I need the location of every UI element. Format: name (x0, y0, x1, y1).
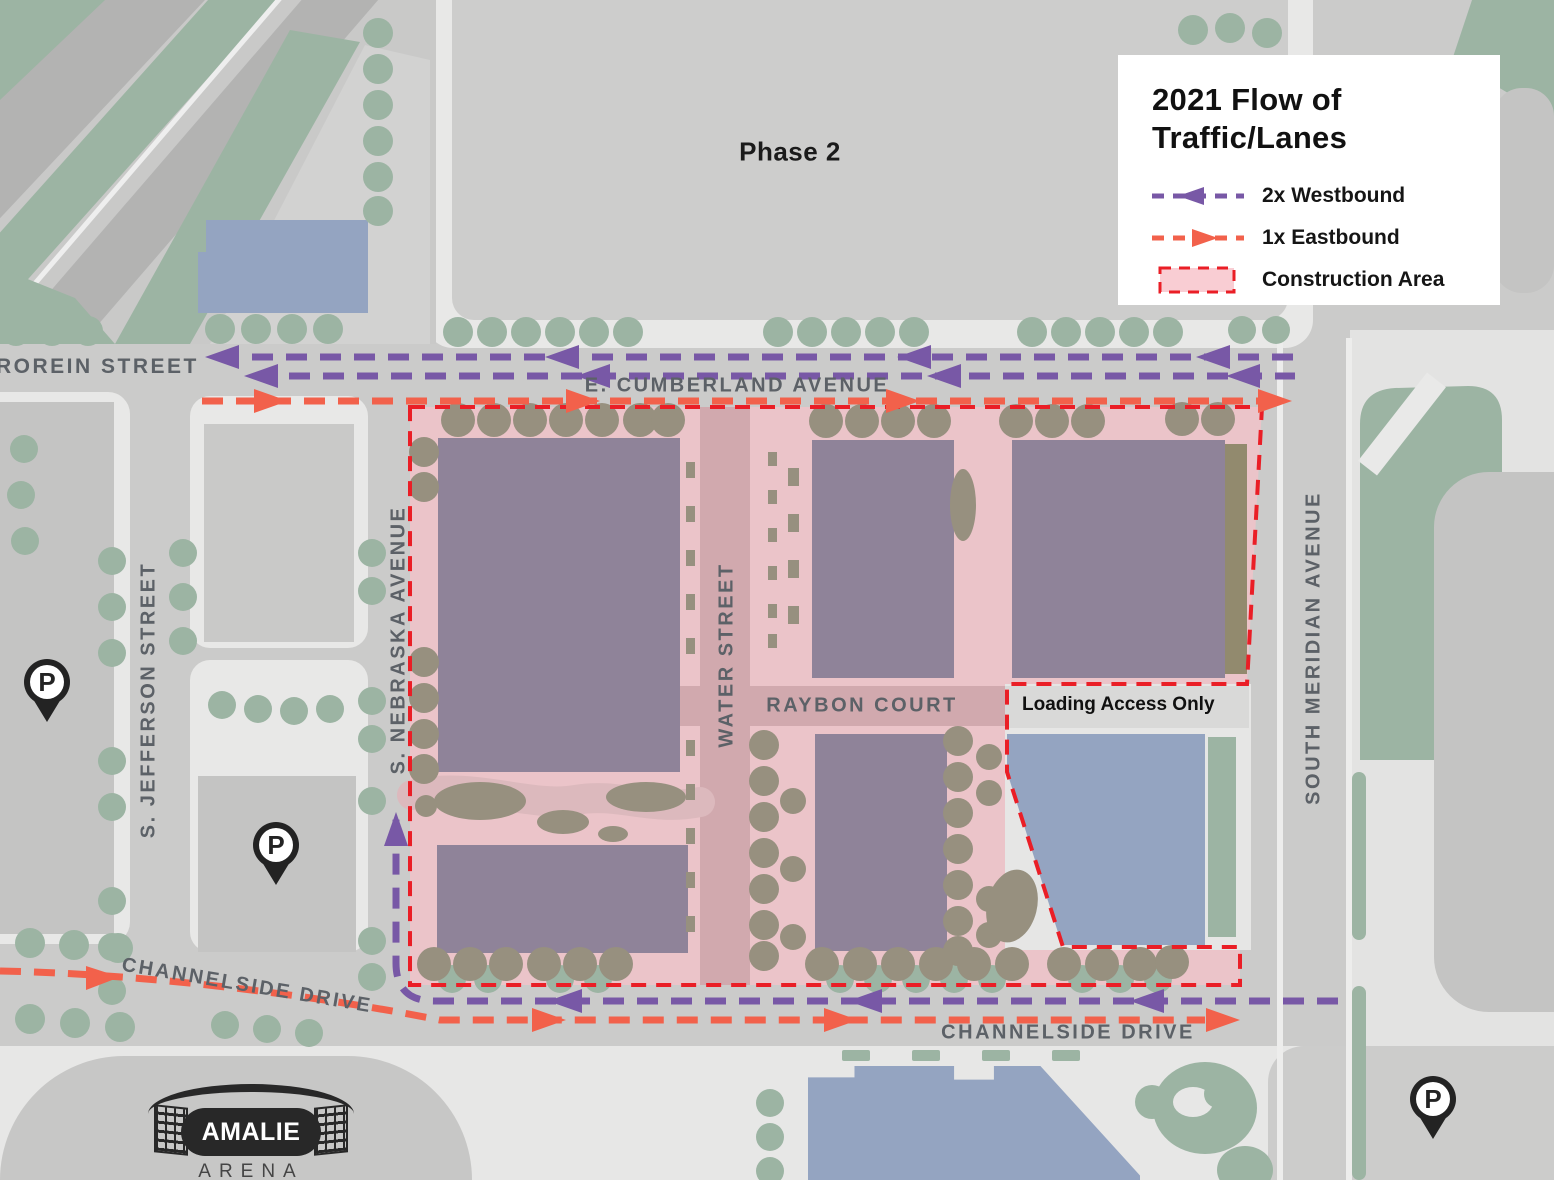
legend-title: 2021 Flow of Traffic/Lanes (1152, 81, 1470, 157)
label-phase-2: Phase 2 (739, 137, 841, 168)
meridian-sidewalk-west (1277, 338, 1283, 1180)
construction-swatch-icon (1152, 264, 1244, 296)
label-nebraska-avenue: S. NEBRASKA AVENUE (388, 506, 411, 775)
eastbound-swatch-icon (1152, 226, 1244, 250)
legend-item-construction: Construction Area (1152, 259, 1470, 301)
label-meridian-avenue: SOUTH MERIDIAN AVENUE (1303, 491, 1326, 805)
label-raybon-court: RAYBON COURT (766, 695, 958, 718)
parking-pin-southeast: P (1410, 1076, 1456, 1138)
label-loading-access: Loading Access Only (1022, 694, 1215, 716)
arena-name-badge: AMALIE (181, 1108, 321, 1156)
amalie-arena-logo: AMALIE ARENA (146, 1084, 356, 1180)
legend: 2021 Flow of Traffic/Lanes 2x Westbound … (1118, 55, 1500, 305)
legend-item-eastbound: 1x Eastbound (1152, 217, 1470, 259)
traffic-flow-map: ROREIN STREET E. CUMBERLAND AVENUE S. JE… (0, 0, 1554, 1180)
label-brorein-street: ROREIN STREET (0, 355, 199, 379)
arena-subtitle: ARENA (146, 1161, 356, 1180)
label-cumberland-avenue: E. CUMBERLAND AVENUE (585, 375, 889, 398)
parking-pin-center: P (253, 822, 299, 884)
westbound-swatch-icon (1152, 184, 1244, 208)
parking-pin-west: P (24, 659, 70, 721)
label-jefferson-street: S. JEFFERSON STREET (138, 562, 161, 838)
building-blue-northwest (198, 220, 368, 313)
label-water-street: WATER STREET (716, 562, 739, 747)
label-channelside-east: CHANNELSIDE DRIVE (941, 1022, 1195, 1045)
meridian-sidewalk-east (1346, 338, 1352, 1180)
legend-item-westbound: 2x Westbound (1152, 175, 1470, 217)
